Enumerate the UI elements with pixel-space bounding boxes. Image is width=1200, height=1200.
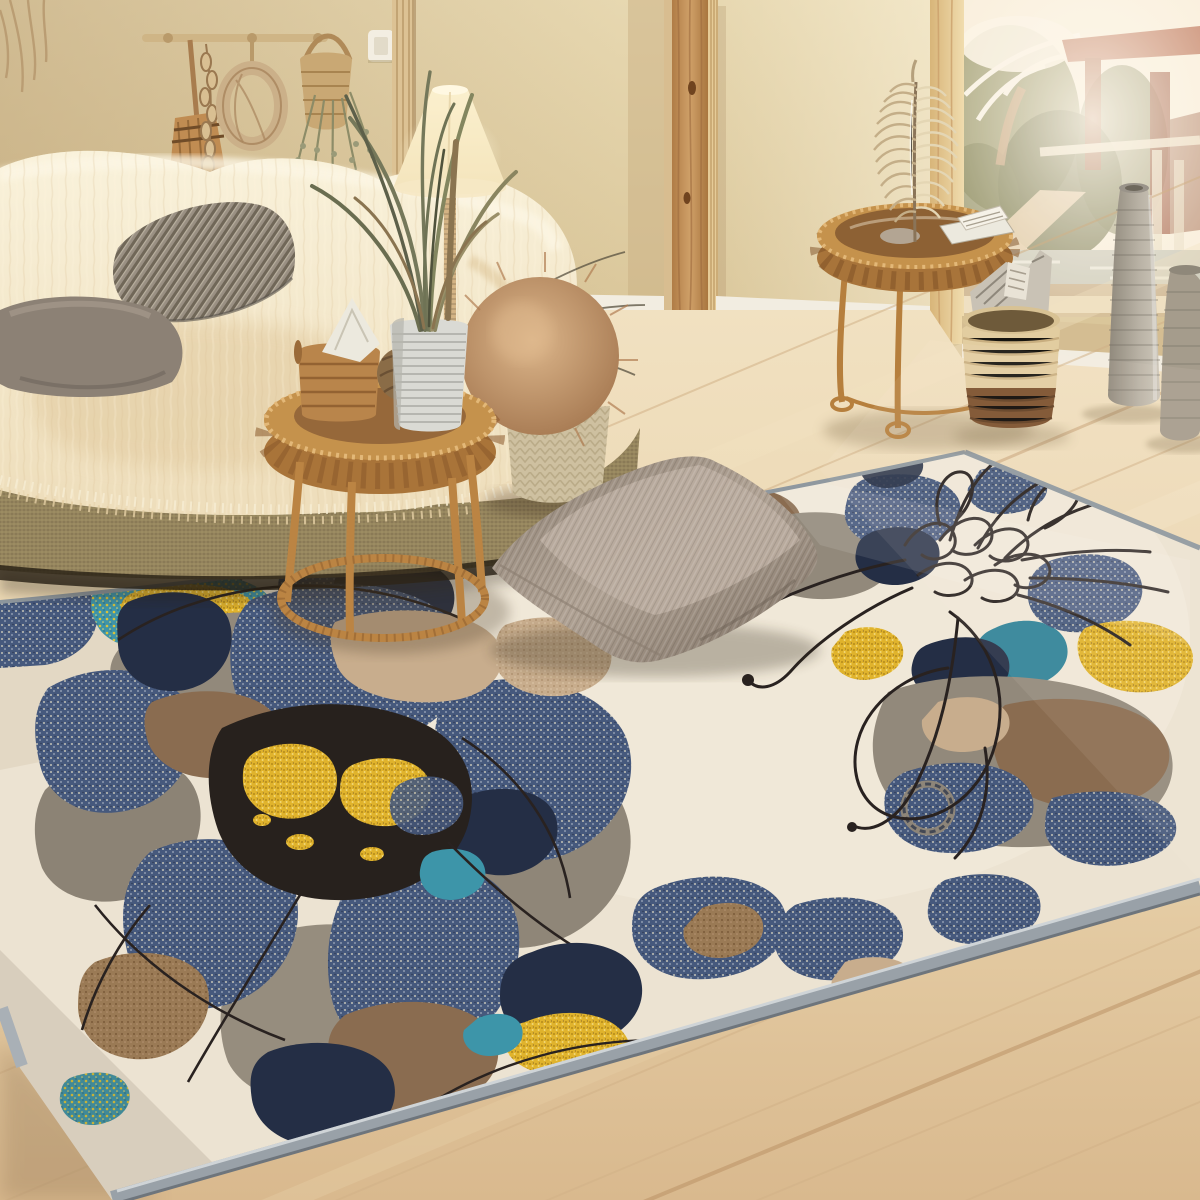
wood-knot [684, 192, 691, 204]
light-switch [368, 30, 394, 63]
window-frame-beam [930, 0, 964, 344]
wall-corner-shade [628, 0, 668, 312]
wooden-beam [664, 0, 726, 314]
gray-velvet-pillow [0, 297, 182, 398]
wood-knot [688, 81, 696, 95]
plant-vase [390, 318, 468, 432]
living-room-photo [0, 0, 1200, 1200]
